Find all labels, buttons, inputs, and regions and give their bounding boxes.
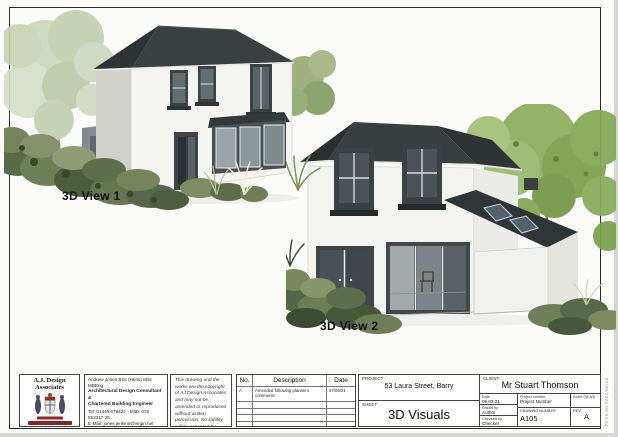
project-client-block: PROJECT 53 Laura Street, Barry SHEET 3D … — [358, 374, 601, 427]
drawing-number-value: A105 — [518, 414, 570, 423]
company-panel: A.J. Design Associates Specialists in Ar… — [19, 374, 80, 427]
sheet-cell: SHEET 3D Visuals — [359, 400, 479, 426]
checked-by-cell: Checked by Checker — [479, 415, 517, 426]
revision-date: 07/09/21 — [327, 387, 355, 401]
project-number-value: Project Number — [518, 399, 570, 404]
copyright-panel: This drawing and the works are the copyr… — [170, 374, 232, 427]
project-number-cell: Project number Project Number — [517, 393, 570, 407]
client-cell: CLIENT Mr Stuart Thomson — [479, 375, 600, 393]
company-name: A.J. Design Associates — [20, 377, 79, 391]
revision-col-no: No. — [237, 375, 253, 386]
view2-render-illustration — [286, 104, 616, 339]
sheet-title: 3D Visuals — [359, 407, 479, 422]
scale-cell: Scale (@ A3) — [570, 393, 600, 407]
revision-description: Amended following planners comments — [253, 387, 327, 401]
company-tagline-1: Specialists in Architectural Design Draw… — [20, 425, 79, 428]
revision-empty-row — [237, 409, 355, 416]
print-timestamp: 07/09/2021 09:54:44 — [604, 378, 609, 427]
view1-label: 3D View 1 — [62, 189, 121, 203]
revision-col-date: Date — [327, 375, 355, 386]
contact-name: Andrew Jones BSc (Hons) MSc MBEng — [88, 377, 164, 389]
contact-title-1: Architectural Design Consultant & — [88, 389, 164, 402]
client-label: CLIENT — [480, 375, 499, 381]
drawing-number-cell: DRAWING NUMBER A105 — [517, 407, 570, 426]
revision-empty-row — [237, 415, 355, 422]
rev-cell: REV A — [570, 407, 600, 426]
revision-header-row: No. Description Date — [237, 375, 355, 387]
revision-table: No. Description Date A Amended following… — [236, 374, 356, 427]
date-cell: Date 09.03.21 — [479, 393, 517, 404]
revision-col-description: Description — [253, 375, 327, 386]
revision-empty-row — [237, 402, 355, 409]
rev-value: A — [571, 414, 600, 421]
drawing-number-label: DRAWING NUMBER — [518, 408, 570, 413]
company-crest-icon — [33, 392, 67, 420]
drawn-by-cell: Drawn by Author — [479, 404, 517, 415]
project-cell: PROJECT 53 Laura Street, Barry — [359, 375, 479, 400]
revision-no: A — [237, 387, 253, 401]
client-value: Mr Stuart Thomson — [480, 380, 600, 390]
contact-phone: Tel: 01446 679422 - Mob: 078 553317 28 — [88, 409, 164, 421]
scale-label: Scale (@ A3) — [571, 394, 600, 399]
rev-label: REV — [571, 408, 600, 413]
project-value: 53 Laura Street, Barry — [359, 383, 479, 390]
contact-email: E-Mail: jones.jenkins@virgin.net — [88, 421, 164, 427]
revision-empty-row — [237, 422, 355, 427]
copyright-text: This drawing and the works are the copyr… — [171, 375, 231, 427]
checked-by-value: Checker — [480, 421, 517, 426]
drawing-sheet: 3D View 1 3D View 2 A.J. Design Associat… — [0, 0, 614, 433]
project-label: PROJECT — [359, 375, 479, 381]
view2-label: 3D View 2 — [320, 319, 379, 333]
contact-title-2: Chartered Building Engineer — [88, 402, 164, 408]
contact-panel: Andrew Jones BSc (Hons) MSc MBEng Archit… — [84, 374, 168, 427]
revision-row: A Amended following planners comments 07… — [237, 387, 355, 402]
